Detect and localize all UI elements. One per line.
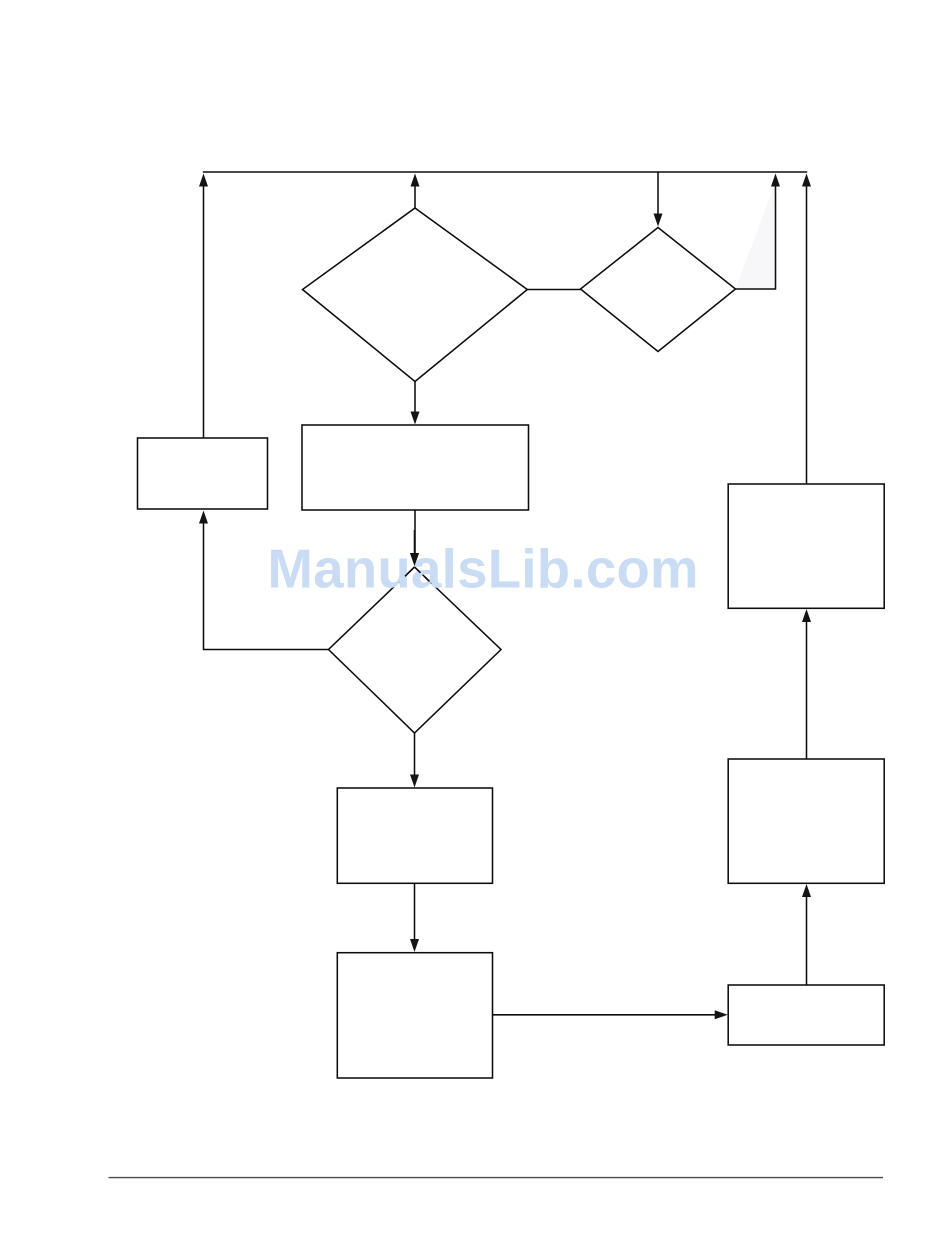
svg-text:ManualsLib.com: ManualsLib.com: [268, 539, 699, 600]
